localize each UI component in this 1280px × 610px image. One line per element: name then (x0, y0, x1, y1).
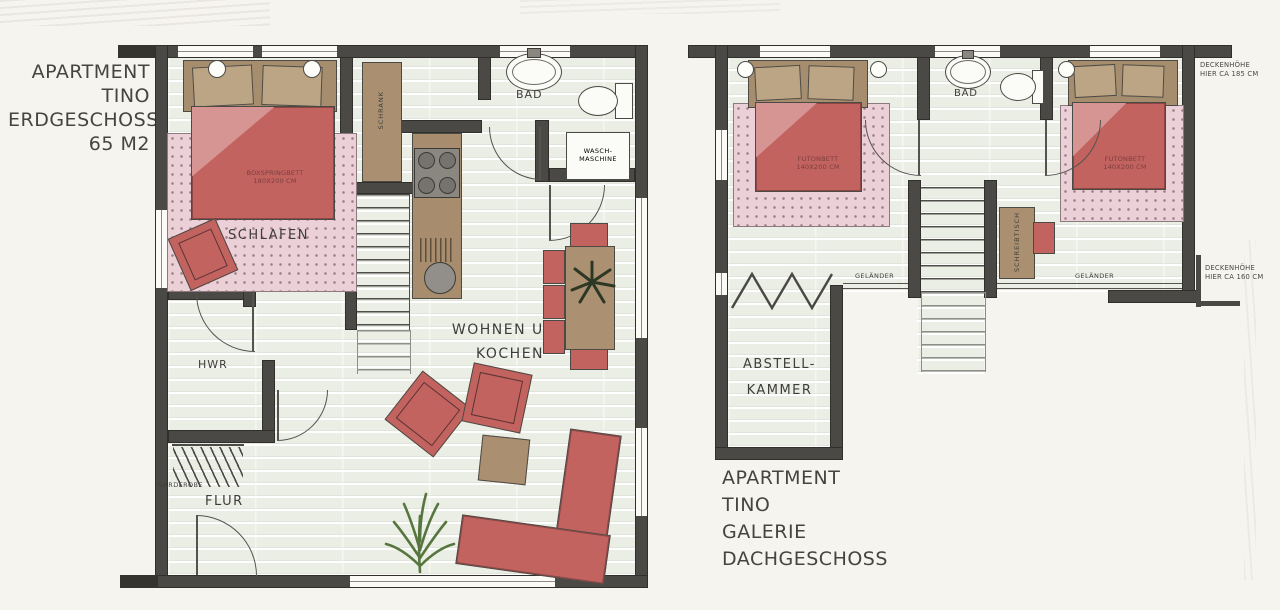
plan-dachgeschoss: FUTONBETT 140X200 CM FUTONBETT 140X200 C… (660, 0, 1280, 610)
railing-label: GELÄNDER (855, 272, 894, 280)
wardrobe-label: SCHRANK (377, 91, 385, 129)
sink-basin (512, 59, 556, 85)
bed-label: FUTONBETT 140X200 CM (1085, 155, 1165, 171)
door-leaf (539, 127, 541, 179)
chair-detail (178, 228, 228, 280)
window (156, 210, 167, 288)
desk: SCHREIBTISCH (999, 207, 1035, 279)
coat-rack-rail (172, 444, 244, 446)
bed-label-line: FUTONBETT (778, 155, 858, 163)
toilet-bowl (1000, 73, 1036, 101)
burner-icon (418, 152, 435, 169)
wall-kitchen-top (398, 120, 482, 133)
washer-label: WASCH- MASCHINE (567, 147, 629, 163)
room-label-flur: FLUR (205, 494, 244, 509)
window (636, 428, 647, 516)
door-leaf (918, 120, 920, 175)
bed-label: BOXSPRINGBETT 180X200 CM (220, 169, 330, 185)
wall-cap (120, 575, 158, 588)
bed-label-line: 180X200 CM (220, 177, 330, 185)
railing (843, 283, 908, 289)
dining-chair (570, 348, 608, 370)
bed-pillow (1121, 64, 1164, 97)
door-leaf (1045, 120, 1047, 175)
note-tick (1196, 301, 1240, 306)
note-line: HIER CA 185 CM (1200, 70, 1258, 79)
bath-sink (945, 55, 991, 89)
stairs-open (357, 330, 411, 374)
burner-icon (439, 177, 456, 194)
wall-bath-left (478, 57, 491, 100)
title-line: APARTMENT (8, 60, 150, 84)
room-label-schlafen: SCHLAFEN (228, 228, 309, 243)
room-label-hwr: HWR (198, 358, 228, 371)
window (760, 46, 830, 57)
toilet-bowl (578, 86, 618, 116)
wall-stairs-right (984, 180, 997, 298)
right-plan-title: APARTMENT TINO GALERIE DACHGESCHOSS (722, 465, 888, 573)
wall-cap (118, 45, 158, 58)
title-line: TINO (722, 492, 888, 519)
stairs (921, 187, 984, 292)
wall-storage-bottom (715, 447, 843, 460)
wall-bath-left (917, 57, 930, 120)
bath-sink (506, 53, 562, 91)
window (636, 198, 647, 338)
bed-fold (756, 103, 817, 158)
window (178, 46, 253, 57)
bed-label-line: BOXSPRINGBETT (220, 169, 330, 177)
door-leaf (549, 185, 551, 240)
bed-fold (192, 107, 274, 176)
wall-lamp (737, 61, 754, 78)
washer-label-line: WASCH- (567, 147, 629, 155)
desk-label: SCHREIBTISCH (1013, 212, 1021, 272)
stairs (357, 194, 410, 330)
bed-label-line: 140X200 CM (1085, 163, 1165, 171)
room-label-line: KAMMER (732, 378, 827, 404)
bed-label: FUTONBETT 140X200 CM (778, 155, 858, 171)
dining-chair (543, 250, 565, 284)
sink-tap (527, 48, 541, 58)
window (262, 46, 337, 57)
bed-pillow (807, 65, 854, 101)
wall-hwr-horizontal (168, 430, 275, 443)
desk-chair (1033, 222, 1055, 254)
railing-label: GELÄNDER (1075, 272, 1114, 280)
wall-left (715, 45, 728, 460)
kitchen-sink (424, 262, 456, 294)
window (1090, 46, 1160, 57)
door-leaf (252, 293, 254, 351)
room-label-abstellkammer: ABSTELL- KAMMER (732, 352, 827, 404)
floor-plant-icon (380, 486, 460, 578)
title-line: 65 M2 (8, 132, 150, 156)
room-label-line: ABSTELL- (732, 352, 827, 378)
bed-label-line: 140X200 CM (778, 163, 858, 171)
dining-chair (570, 223, 608, 247)
title-line: GALERIE (722, 519, 888, 546)
wardrobe: SCHRANK (362, 62, 402, 182)
title-line: APARTMENT (722, 465, 888, 492)
bed-label-line: FUTONBETT (1085, 155, 1165, 163)
sofa (455, 415, 624, 584)
note-tick (1196, 255, 1201, 307)
wall-lamp (1058, 61, 1075, 78)
wall-lamp (870, 61, 887, 78)
note-line: DECKENHÖHE (1205, 264, 1263, 273)
sink-tap (962, 50, 974, 59)
table-plant-icon (566, 256, 618, 308)
bed-futon-left: FUTONBETT 140X200 CM (755, 102, 862, 192)
ceiling-note-bottom: DECKENHÖHE HIER CA 160 CM (1205, 264, 1263, 281)
door-leaf (196, 515, 198, 575)
bed-boxspring: BOXSPRINGBETT 180X200 CM (191, 106, 335, 220)
dining-chair (543, 285, 565, 319)
sink-drainer (420, 238, 454, 262)
wall-bottom-right (1108, 290, 1200, 303)
title-line: DACHGESCHOSS (722, 546, 888, 573)
wall-lamp (303, 60, 321, 78)
wall-stairs-left (908, 180, 921, 298)
door-leaf (277, 390, 279, 440)
window (716, 130, 727, 180)
title-line: ERDGESCHOSS (8, 108, 150, 132)
note-line: HIER CA 160 CM (1205, 273, 1263, 282)
washer-label-line: MASCHINE (567, 155, 629, 163)
stove (414, 148, 460, 198)
ceiling-note-top: DECKENHÖHE HIER CA 185 CM (1200, 61, 1258, 78)
left-plan-title: APARTMENT TINO ERDGESCHOSS 65 M2 (8, 60, 150, 156)
coat-rack-icon (173, 447, 243, 487)
sink-basin (950, 60, 986, 84)
wall-lamp (208, 60, 226, 78)
burner-icon (439, 152, 456, 169)
bed-pillow (754, 65, 802, 101)
stairs-open (921, 292, 986, 372)
floorplan-page: { "colors": { "paper": "#f6f4ee", "wall"… (0, 0, 1280, 610)
clothes-rail-zigzag-icon (728, 270, 838, 312)
bed-pillow (1073, 64, 1117, 98)
room-label-bad: BAD (954, 88, 978, 99)
window (716, 273, 727, 295)
plan-erdgeschoss: APARTMENT TINO ERDGESCHOSS 65 M2 BOXSPRI… (0, 0, 660, 610)
wall-left (155, 45, 168, 588)
railing (997, 283, 1182, 289)
note-line: DECKENHÖHE (1200, 61, 1258, 70)
burner-icon (418, 177, 435, 194)
washing-machine: WASCH- MASCHINE (566, 132, 630, 180)
title-line: TINO (8, 84, 150, 108)
dining-chair (543, 320, 565, 354)
